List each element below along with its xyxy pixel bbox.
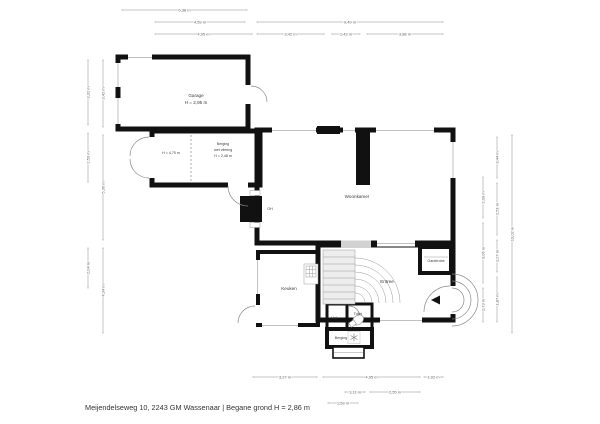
berging-label: Berging (217, 142, 229, 146)
toilet-label: Toilet (354, 312, 362, 316)
berging-links-height-label: H = 4,70 m (162, 151, 180, 155)
dim-label: 3,44 m (494, 151, 499, 164)
sink-grid (306, 266, 316, 277)
hal-label: Hal (331, 316, 337, 320)
door-opening (245, 85, 252, 104)
berging-klein-label: Berging (335, 336, 347, 340)
stairs-flight (323, 250, 355, 304)
dimension-lines (88, 10, 512, 403)
door-swing-arc (238, 306, 255, 323)
dim-label: 4,59 m (194, 19, 207, 24)
open-haard-label: OH (267, 207, 273, 211)
interior-wall-stub (356, 128, 370, 185)
floorplan-canvas: Garage H = 2,95 m H = 4,70 m Berging met… (0, 0, 600, 424)
dim-label: 1,87 m (494, 293, 499, 306)
dim-label: 5,36 m (100, 181, 105, 194)
entrance-arrow-icon (431, 296, 440, 305)
dim-label: 2,50 m (85, 151, 90, 164)
dim-label: 4,95 m (197, 31, 210, 36)
door-opening (149, 137, 156, 178)
fireplace-window-top (250, 191, 260, 196)
dim-label: 2,55 m (389, 389, 402, 394)
dim-label: 4,95 m (365, 374, 378, 379)
fan-icon (348, 332, 360, 344)
dim-label: 2,09 m (480, 191, 485, 204)
dim-label: 3,06 m (480, 246, 485, 259)
door-swing-arc (130, 137, 149, 156)
dim-label: 1,11 m (349, 389, 362, 394)
dim-label: 2,51 m (494, 202, 499, 215)
keuken-label: Keuken (281, 286, 297, 291)
woonkamer-label: Woonkamer (345, 194, 370, 199)
dim-label: 3,88 m (399, 31, 412, 36)
wall-segment (317, 126, 340, 134)
fireplace-mass (240, 196, 262, 222)
room-garage (118, 57, 248, 129)
door-swing-arc (251, 86, 267, 102)
room-woonkamer (257, 126, 453, 243)
dim-label: 1,02 m (427, 374, 440, 379)
kitchen-sink (304, 264, 318, 284)
dim-label: 2,04 m (85, 261, 90, 274)
garage-label: Garage (188, 93, 204, 98)
garage-walls (118, 57, 248, 129)
fireplace-window-bottom (250, 223, 260, 228)
passage-opening (341, 241, 371, 249)
dim-label: 3,32 m (85, 86, 90, 99)
dim-label: 3,27 m (279, 374, 292, 379)
stairs (323, 250, 400, 304)
room-berging-vliering (152, 131, 260, 185)
dim-label: 1,27 m (494, 249, 499, 262)
room-hal (327, 304, 347, 329)
garderobe-label: Garderobe (427, 259, 444, 263)
woonkamer-walls (257, 130, 453, 243)
garage-height-label: H = 2,95 m (185, 100, 208, 105)
berging-label2: met vliering (214, 148, 232, 152)
door-opening (228, 182, 248, 189)
dim-label: 4,34 m (100, 284, 105, 297)
dim-label: 1,73 m (480, 298, 485, 311)
dim-label: 10,02 m (509, 226, 514, 241)
entree-label: Entree (380, 279, 394, 284)
door-swing-arc (130, 159, 149, 178)
berging-height-label: H = 2,48 m (214, 154, 232, 158)
dim-label: 9,49 m (344, 19, 357, 24)
stoop (333, 347, 364, 358)
berging-walls (152, 131, 260, 185)
dimension-labels: 6,38 m 4,59 m 9,49 m 4,95 m 3,42 m 1,43 … (85, 7, 514, 405)
door-opening (255, 305, 261, 323)
dim-label: 6,38 m (178, 7, 191, 12)
dim-label: 1,43 m (340, 31, 353, 36)
fireplace (240, 191, 262, 228)
front-door-opening (449, 286, 457, 314)
dim-label: 1,53 m (337, 400, 350, 405)
hal-walls (327, 304, 347, 329)
address-footer: Meijendelseweg 10, 2243 GM Wassenaar | B… (85, 403, 310, 412)
dim-label: 3,42 m (284, 31, 297, 36)
dim-label: 3,42 m (100, 87, 105, 100)
